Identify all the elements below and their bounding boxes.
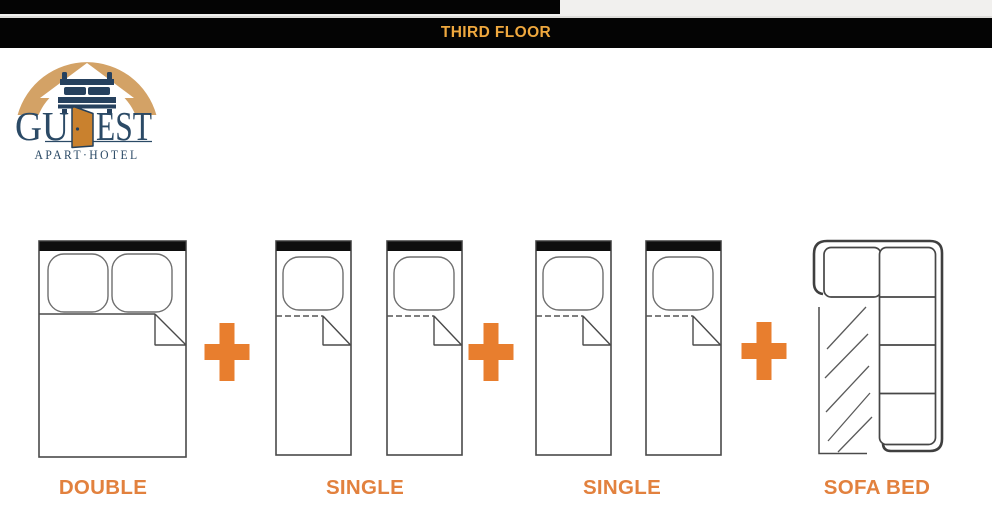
single-bed-diagram <box>646 241 721 455</box>
plus-icon <box>742 322 787 380</box>
sofa-bed-diagram <box>814 241 942 454</box>
plus-icon <box>469 323 514 381</box>
bed-label-single: SINGLE <box>583 476 661 500</box>
sofa-bed-hatch-border <box>819 307 867 454</box>
plus-icon <box>205 323 250 381</box>
floor-plan-diagram <box>0 0 992 521</box>
single-bed-diagram <box>387 241 462 455</box>
bed-label-sofa-bed: SOFA BED <box>824 476 930 500</box>
sofa-bed-hatch-lines <box>825 307 872 452</box>
single-bed-diagram <box>536 241 611 455</box>
bed-label-double: DOUBLE <box>59 476 147 500</box>
double-bed-diagram <box>39 241 186 457</box>
single-bed-diagram <box>276 241 351 455</box>
bed-label-single: SINGLE <box>326 476 404 500</box>
